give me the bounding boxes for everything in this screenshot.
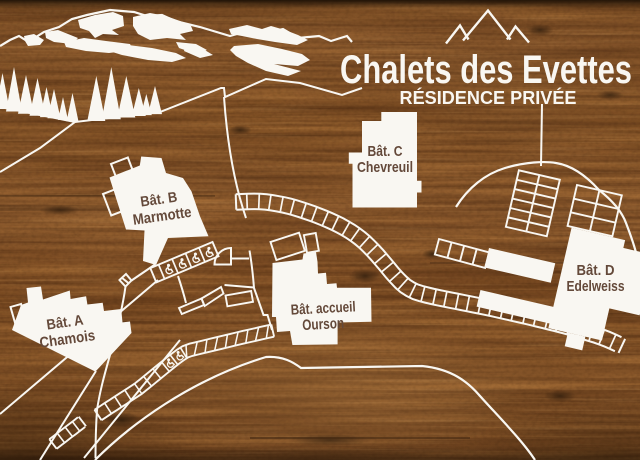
svg-text:Edelweiss: Edelweiss (567, 278, 625, 295)
svg-text:Chalets des Evettes: Chalets des Evettes (340, 48, 632, 92)
svg-text:RÉSIDENCE PRIVÉE: RÉSIDENCE PRIVÉE (400, 87, 577, 108)
svg-text:Bât. D: Bât. D (577, 263, 615, 279)
svg-text:Chevreuil: Chevreuil (357, 159, 413, 176)
svg-text:Bât. C: Bât. C (368, 144, 403, 160)
svg-text:Ourson: Ourson (302, 315, 345, 334)
